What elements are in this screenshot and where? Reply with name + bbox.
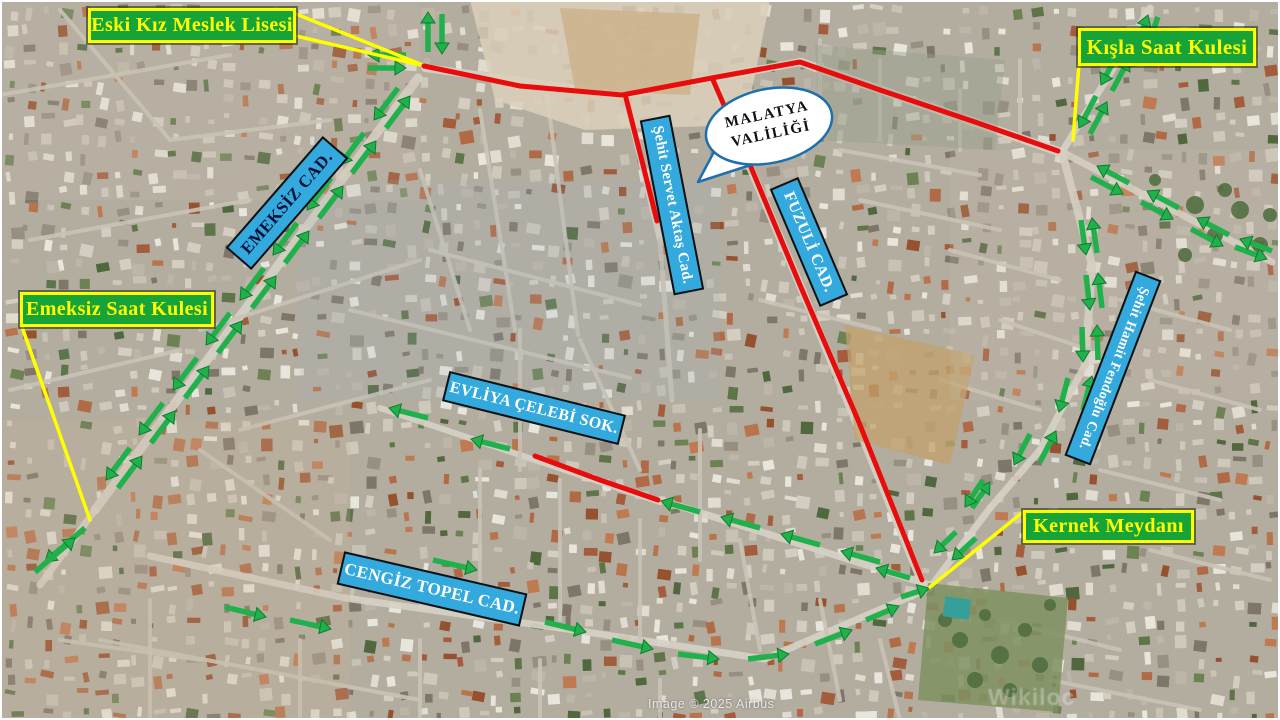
traffic-direction-arrows [35, 12, 1272, 665]
landmark-label-kisla-saat-kulesi: Kışla Saat Kulesi [1078, 28, 1256, 66]
landmark-label-eski-kiz-meslek-lisesi: Eski Kız Meslek Lisesi [88, 8, 296, 43]
logo-watermark: Wikiloc [988, 684, 1075, 711]
imagery-attribution: Image © 2025 Airbus [648, 697, 774, 711]
map-annotations-overlay [0, 0, 1280, 720]
map-canvas: Eski Kız Meslek LisesiKışla Saat KulesiE… [0, 0, 1280, 720]
landmark-label-emeksiz-saat-kulesi: Emeksiz Saat Kulesi [20, 292, 214, 327]
landmark-label-kernek-meydani: Kernek Meydanı [1023, 510, 1194, 543]
